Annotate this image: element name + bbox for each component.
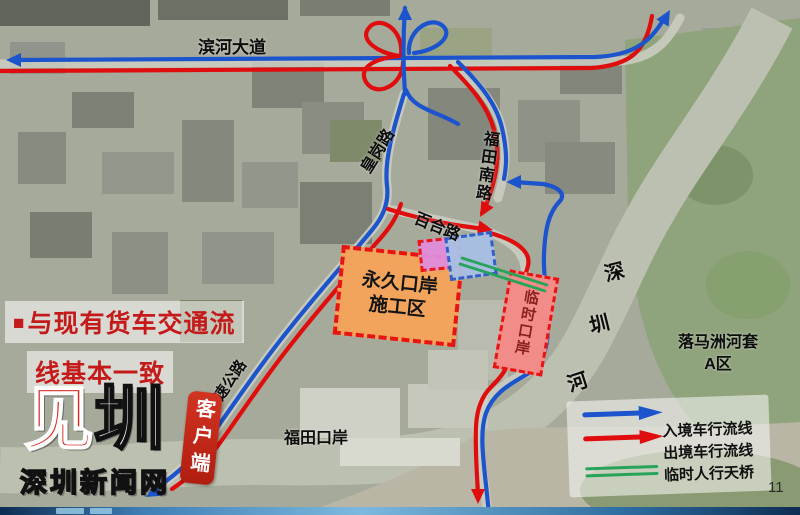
logo-char-1: 见 (24, 380, 94, 458)
legend: 入境车行流线 出境车行流线 临时人行天桥 (566, 395, 771, 498)
legend-label-footbridge: 临时人行天桥 (664, 461, 755, 485)
legend-green-line-icon (583, 462, 669, 481)
legend-label-outbound: 出境车行流线 (663, 439, 754, 463)
page-number: 11 (768, 479, 784, 496)
legend-red-arrow-icon (581, 428, 667, 447)
label-binhe-avenue: 滨河大道 (198, 33, 266, 58)
bottom-bar-segment (90, 508, 112, 514)
bullet-icon: ■ (13, 313, 25, 334)
logo: 见圳 (24, 384, 164, 454)
bottom-bar (0, 507, 800, 515)
legend-label-inbound: 入境车行流线 (662, 417, 753, 441)
client-badge-label: 客户端 (182, 396, 219, 480)
annotation-line1: ■与现有货车交通流 (5, 301, 244, 343)
footbridge-line-1 (462, 258, 547, 285)
slide: 永久口岸 施工区 临时口岸 滨河大道 皇岗路 福田南路 百合路 广深高速公路 福… (0, 0, 800, 515)
label-futian-port: 福田口岸 (284, 424, 348, 448)
legend-blue-arrow-icon (581, 404, 667, 423)
footbridge-line-2 (460, 264, 545, 291)
logo-char-2: 圳 (94, 380, 164, 458)
label-loop-area-line1: 落马洲河套 (663, 328, 773, 352)
bottom-bar-segment (56, 508, 84, 514)
label-loop-area-line2: A区 (663, 350, 773, 374)
logo-subtitle: 深圳新闻网 (20, 461, 170, 500)
